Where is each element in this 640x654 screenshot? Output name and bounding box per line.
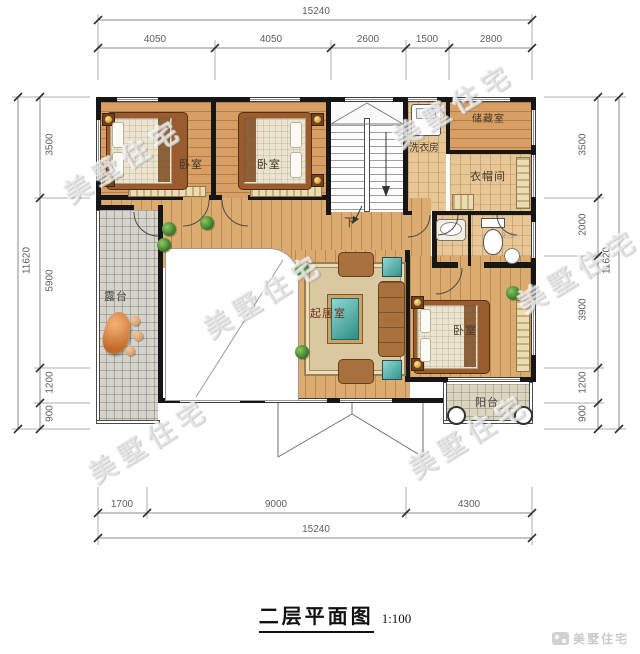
- dim-right-seg: 900: [578, 384, 589, 444]
- wash-basin: [504, 248, 520, 264]
- window: [531, 155, 536, 197]
- pillow: [290, 152, 302, 178]
- dim-top-seg: 4050: [105, 34, 205, 45]
- dim-right-overall: 11620: [602, 231, 613, 291]
- dim-bottom-overall: 15240: [266, 524, 366, 535]
- window: [531, 222, 536, 258]
- room-label-balcony: 阳台: [475, 394, 499, 410]
- dim-left-overall: 11620: [22, 231, 33, 291]
- drawing-scale: 1:100: [382, 611, 412, 626]
- window: [345, 97, 393, 102]
- wardrobe: [452, 194, 474, 210]
- nightstand: [311, 113, 324, 126]
- balcony-column: [514, 406, 533, 425]
- pillow: [420, 309, 431, 333]
- side-table: [382, 360, 402, 380]
- window: [250, 97, 300, 102]
- dim-top-overall: 15240: [266, 6, 366, 17]
- pillow: [112, 122, 124, 148]
- pillow: [290, 122, 302, 148]
- window: [531, 300, 536, 355]
- sink: [436, 219, 466, 241]
- brand-logo-icon: [552, 632, 569, 645]
- plant: [506, 286, 520, 300]
- brand-logo-text: 美墅住宅: [573, 630, 629, 647]
- dim-bottom-seg: 4300: [419, 499, 519, 510]
- bed-throw: [244, 118, 256, 182]
- dim-top-seg: 4050: [221, 34, 321, 45]
- window: [453, 97, 510, 102]
- dim-right-seg: 2000: [578, 195, 589, 255]
- wall-stub: [408, 211, 412, 215]
- plant: [200, 216, 214, 230]
- wall-bath-bottom: [432, 262, 458, 268]
- window: [408, 97, 437, 102]
- window: [117, 97, 158, 102]
- dim-left-seg: 5900: [45, 251, 56, 311]
- dim-left-seg: 3500: [45, 115, 56, 175]
- wall-bed1-bed2: [211, 102, 216, 198]
- bed-throw: [158, 118, 170, 182]
- dim-top-seg: 2800: [441, 34, 541, 45]
- balcony-door: [448, 377, 520, 382]
- side-table: [382, 257, 402, 277]
- wall-terrace-top: [96, 205, 134, 210]
- void-open-to-below: [165, 248, 299, 401]
- footer-brand: 美墅住宅: [552, 630, 629, 647]
- room-label-terrace: 露台: [104, 288, 128, 304]
- window: [340, 398, 392, 403]
- dresser: [516, 300, 530, 372]
- floor-plan-page: 卧室 卧室 卧室 洗衣房 储藏室 衣帽间 起居室 露台 阳台 下 2.3 152…: [0, 0, 640, 654]
- plant: [162, 222, 176, 236]
- wall-stairs-laundry: [403, 102, 408, 215]
- armchair: [338, 359, 374, 384]
- armchair: [338, 252, 374, 277]
- drawing-title: 二层平面图: [259, 606, 374, 633]
- washing-machine: [411, 104, 441, 136]
- balcony-column: [447, 406, 466, 425]
- bath-note: 2.3: [502, 231, 515, 240]
- wardrobe: [516, 157, 530, 209]
- terrace-stool: [130, 316, 140, 326]
- dim-bottom-seg: 1700: [72, 499, 172, 510]
- window: [96, 120, 101, 178]
- nightstand: [411, 296, 424, 309]
- window: [531, 110, 536, 145]
- stair-center-rail: [364, 118, 370, 212]
- nightstand: [311, 174, 324, 187]
- plant: [295, 345, 309, 359]
- pillow: [420, 338, 431, 362]
- dim-left-seg: 900: [45, 384, 56, 444]
- terrace-stool: [133, 331, 143, 341]
- terrace-stool: [125, 346, 135, 356]
- wall-terrace-side: [158, 205, 163, 403]
- dim-bottom-seg: 9000: [226, 499, 326, 510]
- room-label-bedroom1: 卧室: [179, 156, 203, 172]
- drawing-title-block: 二层平面图1:100: [225, 600, 445, 629]
- plant: [295, 262, 309, 276]
- sofa: [378, 281, 405, 357]
- terrace-parapet: [96, 210, 100, 424]
- dim-right-seg: 3900: [578, 280, 589, 340]
- room-label-bedroom3: 卧室: [453, 322, 477, 338]
- wall-cloakroom-bath: [432, 211, 536, 215]
- wall-laundry-storage: [446, 102, 450, 154]
- wall-storage-cloakroom: [450, 150, 531, 154]
- wall-bedrooms-hall: [209, 195, 222, 200]
- pillow: [112, 152, 124, 178]
- stairs-down-label: 下: [344, 214, 356, 230]
- plant: [157, 238, 171, 252]
- dim-right-seg: 3500: [578, 115, 589, 175]
- room-label-storage: 储藏室: [472, 110, 505, 125]
- wall-bath-partition: [468, 215, 471, 266]
- room-label-laundry: 洗衣房: [409, 139, 439, 154]
- room-label-living: 起居室: [310, 305, 346, 321]
- terrace-parapet: [96, 420, 160, 424]
- room-label-cloakroom: 衣帽间: [470, 168, 506, 184]
- terrace-floor: [98, 210, 158, 422]
- room-label-bedroom2: 卧室: [257, 156, 281, 172]
